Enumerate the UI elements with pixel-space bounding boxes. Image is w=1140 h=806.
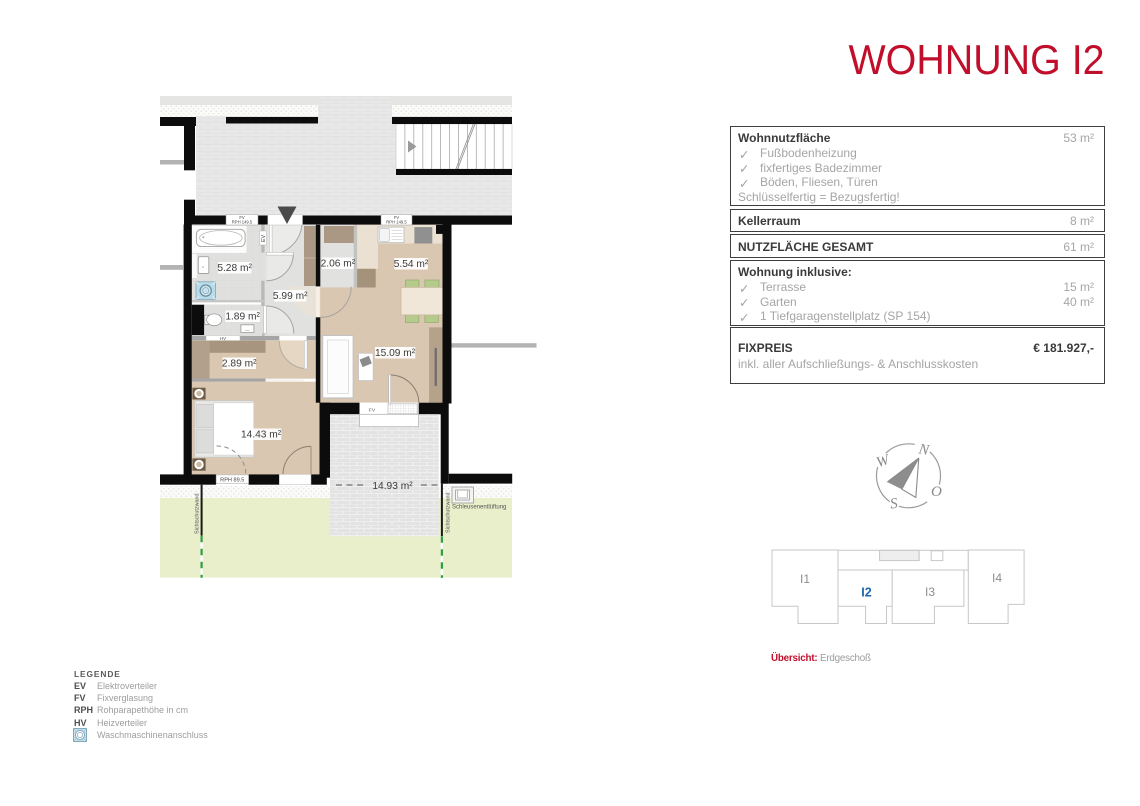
svg-text:O: O [931,484,942,500]
svg-text:RPH 89.5: RPH 89.5 [220,478,244,484]
svg-text:2.89 m²: 2.89 m² [222,359,257,370]
svg-text:5.99 m²: 5.99 m² [273,291,308,302]
svg-text:14.93 m²: 14.93 m² [372,481,413,492]
svg-text:I3: I3 [925,585,935,599]
svg-text:14.43 m²: 14.43 m² [241,430,282,441]
svg-text:Sichtschutzwand: Sichtschutzwand [446,493,452,533]
svg-text:EV: EV [261,235,267,243]
svg-text:I1: I1 [800,572,810,586]
svg-text:5.28 m²: 5.28 m² [217,263,252,274]
svg-text:15.09 m²: 15.09 m² [375,348,416,359]
svg-text:N: N [916,441,931,459]
svg-text:RPH 149.5: RPH 149.5 [386,219,407,224]
svg-text:FV: FV [369,408,376,414]
svg-text:2.06 m²: 2.06 m² [321,259,356,270]
svg-text:I4: I4 [992,571,1002,585]
svg-text:1.89 m²: 1.89 m² [225,312,260,323]
svg-text:5.54 m²: 5.54 m² [394,259,429,270]
svg-text:I2: I2 [861,586,871,600]
svg-text:S: S [889,496,899,513]
svg-text:RPH 149.5: RPH 149.5 [232,219,253,224]
svg-text:Schleusenentlüftung: Schleusenentlüftung [452,505,506,511]
svg-text:HV: HV [220,336,226,341]
svg-text:Sichtschutzwand: Sichtschutzwand [195,494,201,534]
